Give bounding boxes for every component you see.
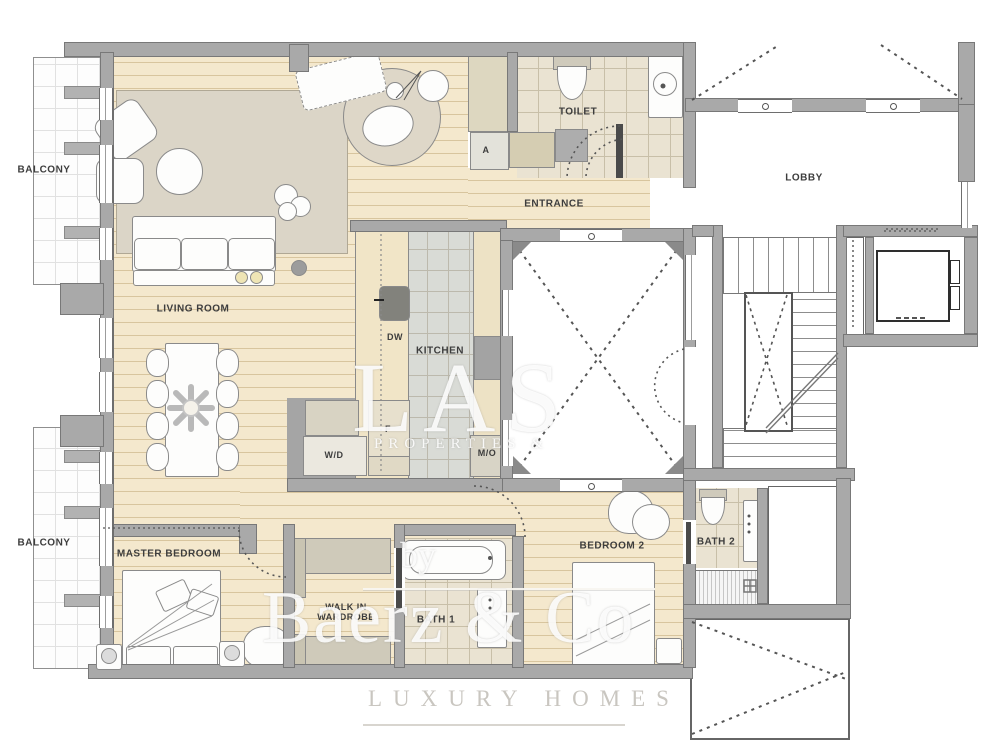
wall xyxy=(64,42,694,57)
bowl xyxy=(235,271,248,284)
wall xyxy=(685,98,975,112)
nightstand xyxy=(656,638,682,664)
shower-floor xyxy=(695,570,761,608)
watermark-brand: Baerz & Co xyxy=(262,578,635,659)
entry-closet xyxy=(555,129,588,162)
front-door-leaf xyxy=(616,124,623,178)
wall xyxy=(60,283,104,315)
dining-chair xyxy=(146,412,169,440)
wall xyxy=(289,44,309,72)
label-appliance-a: A xyxy=(483,145,490,155)
window xyxy=(99,452,114,484)
wall xyxy=(712,225,723,468)
window xyxy=(99,318,114,358)
wall xyxy=(958,104,975,182)
window-sill xyxy=(64,506,103,519)
watermark-big: LAS xyxy=(352,348,571,448)
dining-chair xyxy=(216,412,239,440)
kitchen-sink xyxy=(379,286,410,321)
dining-chair xyxy=(146,380,169,408)
dining-table xyxy=(165,343,219,477)
stairwell-void xyxy=(744,292,793,432)
window xyxy=(99,508,114,566)
wall xyxy=(287,478,503,492)
wall xyxy=(507,52,518,132)
wall xyxy=(843,334,978,347)
window-sill xyxy=(64,226,103,239)
label-balcony-top: BALCONY xyxy=(18,165,71,176)
wall xyxy=(239,524,257,554)
elevator-rail xyxy=(950,286,960,310)
watermark-tagline: LUXURY HOMES xyxy=(368,686,680,712)
label-lobby: LOBBY xyxy=(785,173,823,184)
stair-flight xyxy=(790,292,839,430)
wall xyxy=(836,478,851,618)
stair-landing-top xyxy=(723,237,839,294)
utility-cabinet xyxy=(305,400,359,436)
appliance-a xyxy=(470,132,509,170)
stool xyxy=(291,260,307,276)
storage-room xyxy=(768,486,838,606)
window xyxy=(99,372,114,412)
wall xyxy=(843,225,978,237)
wall xyxy=(683,468,855,481)
void-diagonal xyxy=(692,45,779,100)
window-sill xyxy=(64,594,103,607)
dining-chair xyxy=(216,443,239,471)
label-balcony-bottom: BALCONY xyxy=(18,538,71,549)
window xyxy=(99,228,114,260)
wall xyxy=(88,664,693,679)
window xyxy=(685,255,696,340)
doorway xyxy=(685,347,696,425)
wall xyxy=(958,42,975,112)
patio-window-top xyxy=(560,229,622,242)
lobby-door-opening xyxy=(738,99,792,113)
wall xyxy=(757,488,768,604)
washbasin xyxy=(653,72,677,96)
wardrobe-unit xyxy=(305,538,391,574)
label-bedroom2: BEDROOM 2 xyxy=(579,541,644,552)
lamp xyxy=(224,645,240,661)
window xyxy=(961,182,972,228)
wall xyxy=(683,480,696,668)
stair-landing-bottom xyxy=(723,428,839,470)
label-toilet: TOILET xyxy=(559,107,597,118)
dining-chair xyxy=(216,349,239,377)
wall xyxy=(865,237,874,334)
wall xyxy=(964,237,978,334)
label-bath2: BATH 2 xyxy=(697,537,735,548)
window-sill xyxy=(64,450,103,463)
wall xyxy=(350,220,507,232)
door-leaf xyxy=(686,522,691,564)
wall xyxy=(692,225,714,237)
patio-window-bottom xyxy=(560,479,622,492)
wall xyxy=(683,42,696,188)
patio-door-arc xyxy=(655,349,684,423)
sofa-cushion xyxy=(228,238,275,270)
label-washer-dryer: W/D xyxy=(325,450,344,460)
lobby-door-opening xyxy=(866,99,920,113)
plant xyxy=(278,202,297,221)
label-master-bedroom: MASTER BEDROOM xyxy=(117,549,221,560)
floor-plan: BALCONY BALCONY LIVING ROOM KITCHEN DW F… xyxy=(0,0,1000,756)
decor-item xyxy=(386,82,404,100)
wall xyxy=(683,604,851,619)
dining-chair xyxy=(146,349,169,377)
cabinet-small xyxy=(368,456,410,476)
elevator-rail xyxy=(950,260,960,284)
void-area-bottom xyxy=(690,618,850,740)
entry-counter xyxy=(509,132,555,168)
bowl xyxy=(250,271,263,284)
dining-chair xyxy=(146,443,169,471)
sofa-cushion xyxy=(134,238,181,270)
void-diagonal xyxy=(881,45,962,99)
service-shaft xyxy=(845,237,864,336)
label-entrance: ENTRANCE xyxy=(524,199,584,210)
label-living-room: LIVING ROOM xyxy=(157,304,230,315)
window xyxy=(99,596,114,628)
window xyxy=(99,88,114,120)
sofa-cushion xyxy=(181,238,228,270)
window-sill xyxy=(64,142,103,155)
bedroom2-armchair-cushion xyxy=(632,504,670,540)
window xyxy=(99,145,114,203)
wall xyxy=(100,524,241,537)
watermark-rule-bottom xyxy=(363,724,625,726)
side-table xyxy=(417,70,449,102)
dining-chair xyxy=(216,380,239,408)
watermark-by: by xyxy=(400,534,436,576)
wall xyxy=(60,415,104,447)
window xyxy=(502,290,513,336)
lamp xyxy=(101,648,117,664)
watermark-sub: PROPERTIES & xyxy=(374,436,549,453)
elevator-cab xyxy=(876,250,950,322)
coffee-table xyxy=(156,148,203,195)
pantry-cabinet xyxy=(468,52,510,132)
label-dishwasher: DW xyxy=(387,332,403,342)
window-sill xyxy=(64,86,103,99)
